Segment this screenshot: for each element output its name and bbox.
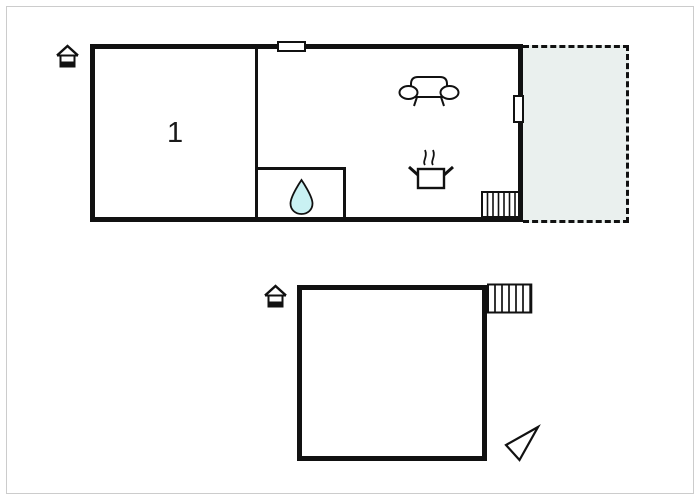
window-right [513,95,524,123]
window-top [277,41,306,52]
floor2-building-outline [297,285,487,461]
bathroom-wall-right [343,167,346,222]
interior-wall-room1 [255,44,258,222]
bathroom-wall-top [255,167,346,170]
room-1-label: 1 [167,119,183,148]
house-entrance-icon [56,44,79,69]
house-entrance-icon [264,284,287,309]
cooking-pot-icon [405,144,455,193]
floor-plan: 1 [0,0,700,500]
water-drop-icon [288,178,315,215]
sofa-icon [398,71,460,108]
terrace [523,45,629,223]
stairs-floor1 [481,191,520,218]
north-arrow-icon [502,421,544,463]
stairs-floor2 [487,283,533,314]
